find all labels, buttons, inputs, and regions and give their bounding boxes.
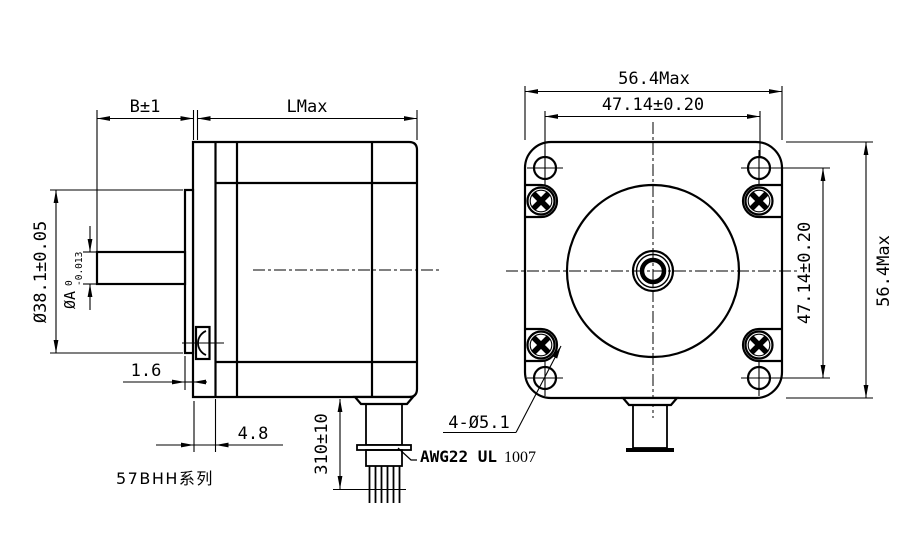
dim-hole-pitch-h-label: 47.14±0.20 <box>602 95 704 115</box>
dim-hole-pitch-v-label: 47.14±0.20 <box>795 222 815 324</box>
side-view: B±1 LMax Ø38.1±0.05 ØA 0 -0.013 <box>31 97 440 503</box>
lead-wire-label-suffix: 1007 <box>504 449 536 466</box>
wire-bundle-end-cap <box>626 448 674 452</box>
phillips-screw-icon <box>528 188 555 215</box>
wire-exit-front <box>623 398 677 452</box>
dim-boss-height-label: 1.6 <box>131 361 162 381</box>
shaft-side <box>97 252 185 284</box>
series-label: 57BHH系列 <box>116 469 214 488</box>
strain-relief-front <box>623 398 677 405</box>
dim-flange-depth-label: 4.8 <box>238 424 269 444</box>
dim-lead-length-label: 310±10 <box>312 413 332 474</box>
front-view: 56.4Max 47.14±0.20 47.14±0.20 56.4Max 4-… <box>443 69 894 452</box>
shaft-tolerance-lower: -0.013 <box>74 252 85 286</box>
strain-relief-side <box>355 397 413 404</box>
dimensions-side: B±1 LMax Ø38.1±0.05 ØA 0 -0.013 <box>31 97 417 490</box>
phillips-screw-icon <box>746 332 773 359</box>
pilot-boss <box>185 190 193 353</box>
drawing-canvas: B±1 LMax Ø38.1±0.05 ØA 0 -0.013 <box>0 0 917 543</box>
lead-wire-label: AWG22 UL <box>420 447 497 466</box>
wire-bundle-front <box>633 405 667 448</box>
dim-mounting-holes-label: 4-Ø5.1 <box>448 413 509 433</box>
dim-width-max-label: 56.4Max <box>618 69 690 89</box>
dim-body-length-label: LMax <box>287 97 328 117</box>
lead-wire-callout: AWG22 UL 1007 <box>398 447 536 466</box>
phillips-screw-icon <box>528 332 555 359</box>
dim-shaft-extension-label: B±1 <box>130 97 161 117</box>
phillips-screw-icon <box>746 188 773 215</box>
dim-boss-diameter-label: Ø38.1±0.05 <box>31 221 51 323</box>
dim-shaft-diameter-label: ØA <box>61 291 79 309</box>
wire-bundle-side-lower <box>366 450 402 466</box>
wire-bundle-side-upper <box>366 404 402 445</box>
lead-wires <box>370 466 400 503</box>
dim-height-max-label: 56.4Max <box>874 235 894 307</box>
wire-exit-side <box>355 397 413 503</box>
stepper-motor-technical-drawing: B±1 LMax Ø38.1±0.05 ØA 0 -0.013 <box>0 0 917 543</box>
